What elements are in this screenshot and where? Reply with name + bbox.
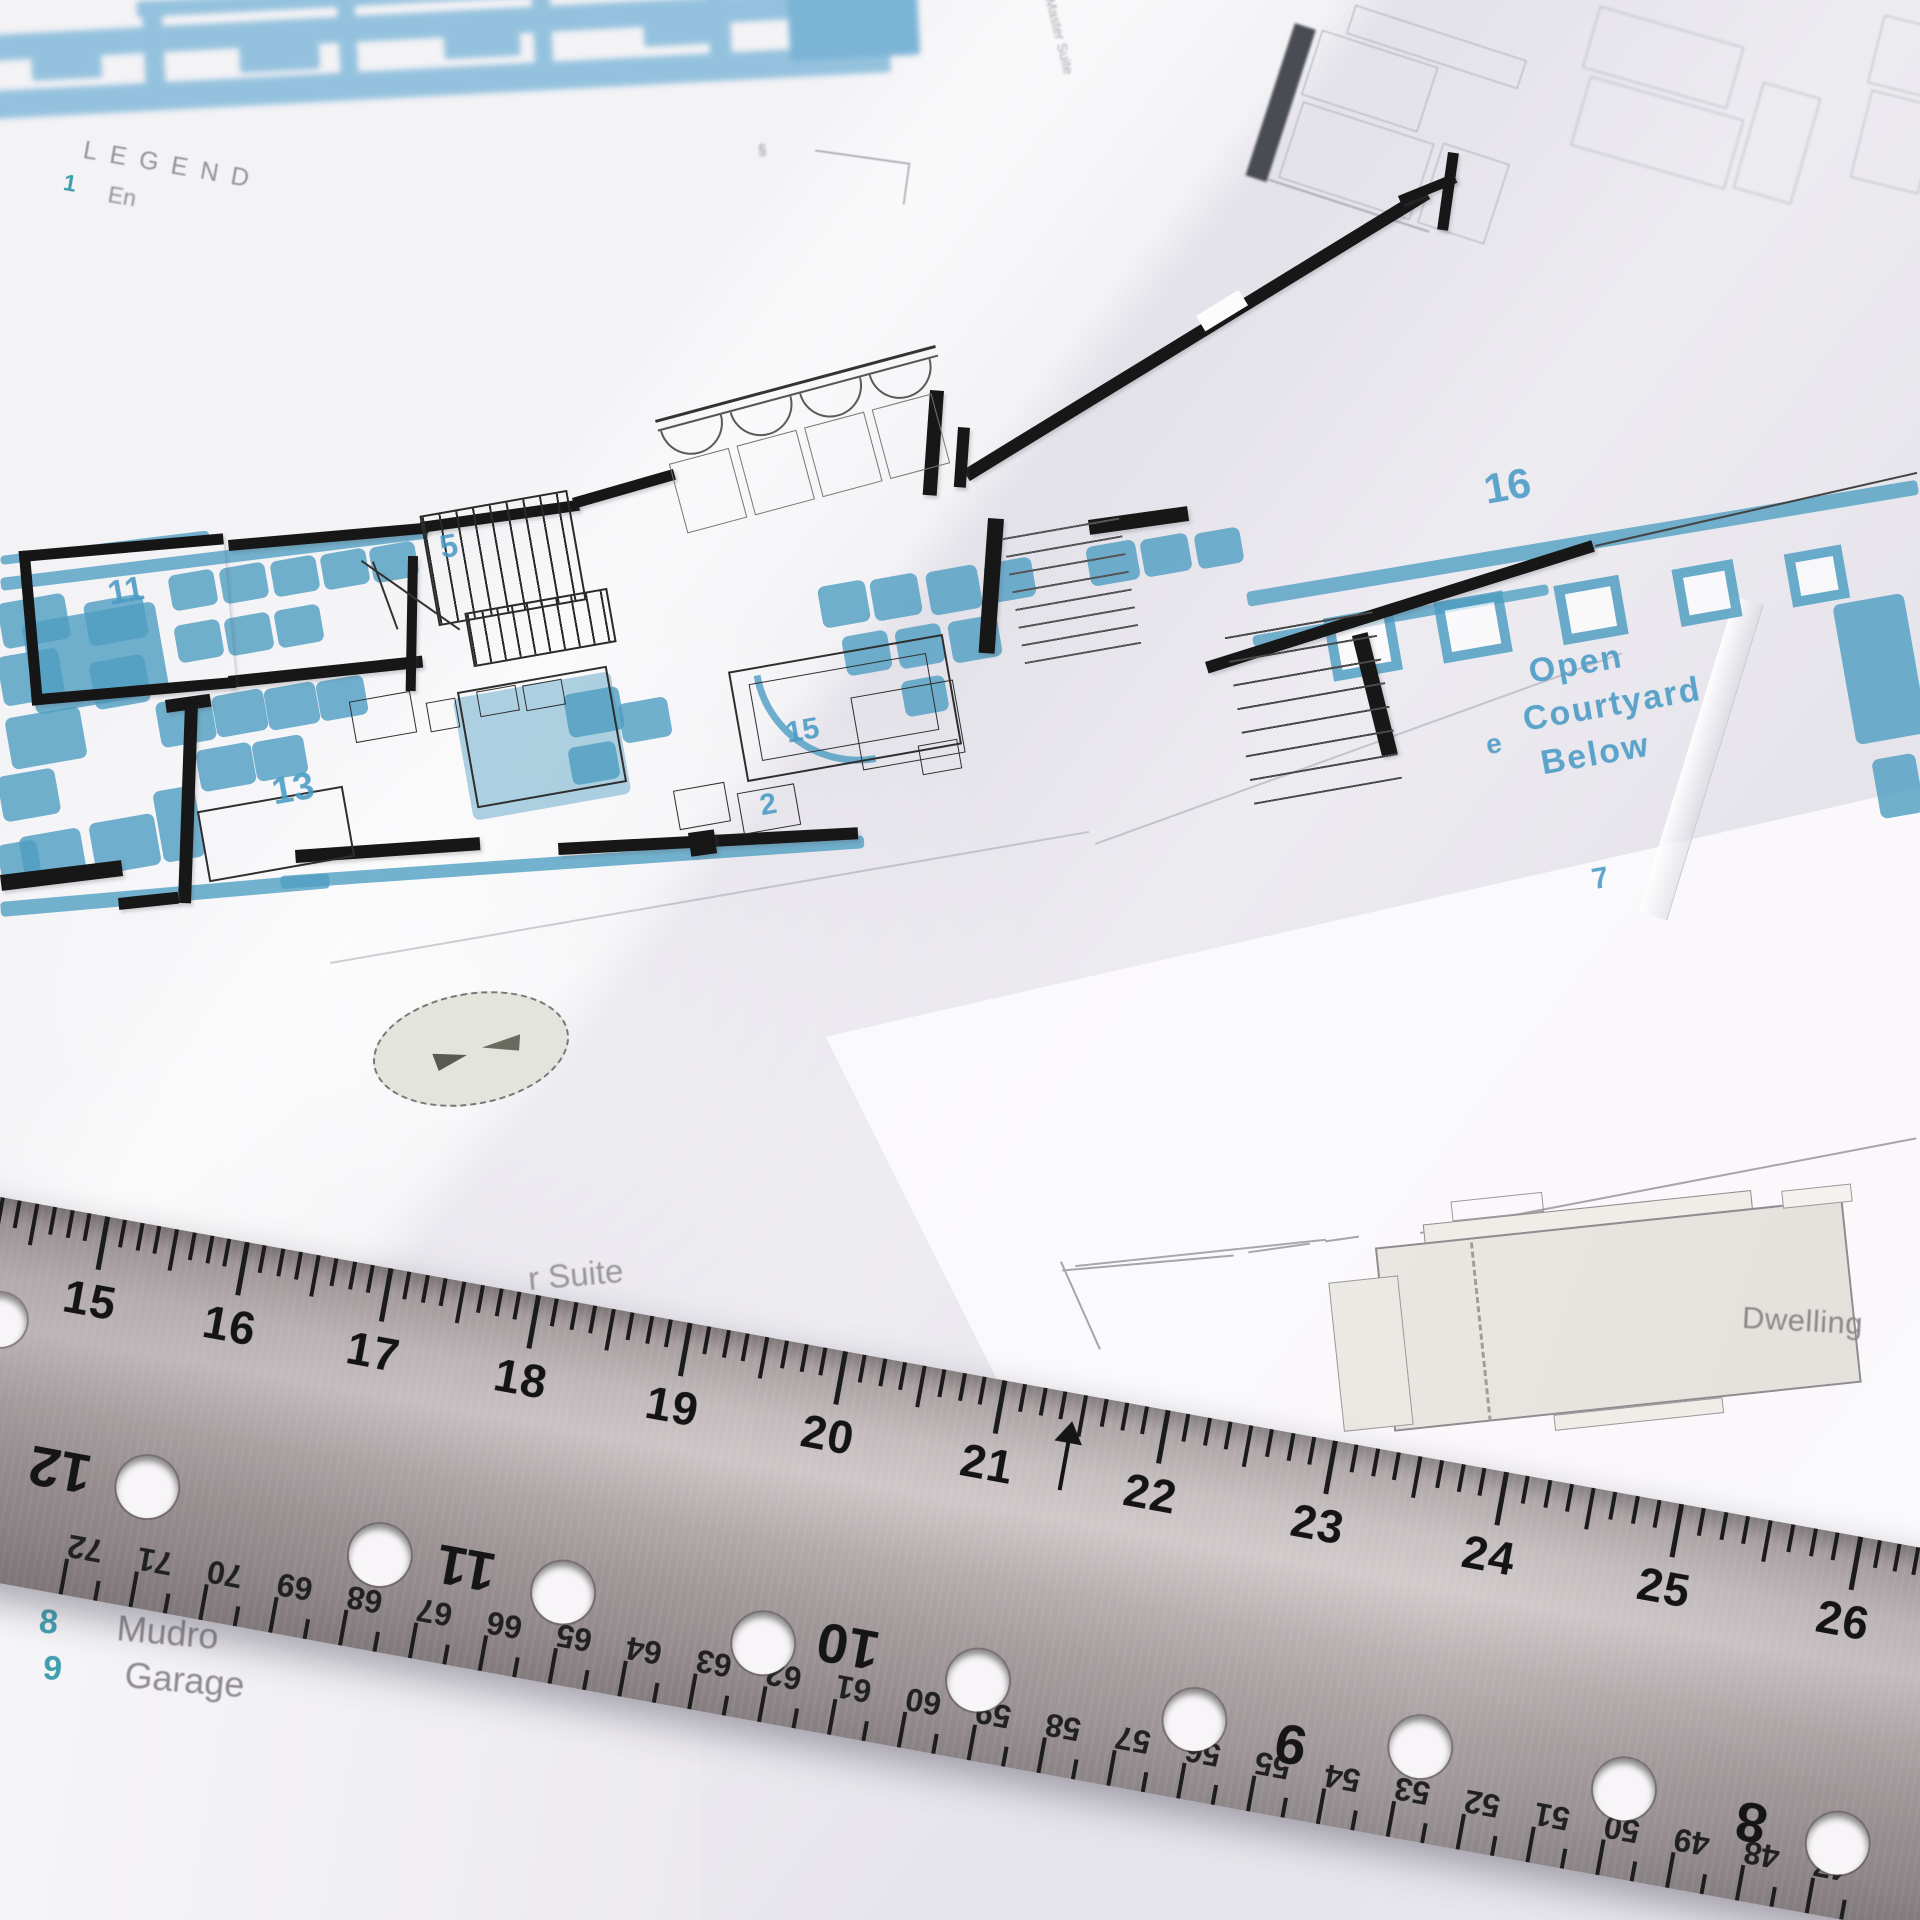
blueprint-furniture-blob	[817, 579, 872, 629]
gray-room	[1867, 15, 1920, 100]
blueprint-furniture-blob	[925, 564, 984, 616]
ink-furniture	[918, 739, 963, 775]
ink-wall	[572, 469, 676, 509]
gray-room	[1850, 90, 1920, 194]
ruler-hole-number: 9	[1269, 1710, 1311, 1780]
blueprint-furniture-blob	[617, 696, 673, 744]
stray-number: 7	[1589, 861, 1611, 897]
scallop-wall	[655, 345, 952, 482]
legend-item-label: En	[106, 181, 138, 212]
closet-rect	[804, 412, 883, 498]
ink-thin-wall	[1595, 472, 1917, 547]
blueprint-furniture-blob	[1871, 753, 1920, 820]
blueprint-window-square	[1671, 559, 1742, 627]
table-leg	[481, 1034, 523, 1057]
footprint-long-line	[1075, 1239, 1326, 1267]
room-number: 15	[783, 711, 822, 750]
ruler-hole-number: 11	[431, 1531, 501, 1606]
shelf-grid-b	[1224, 606, 1402, 804]
lot-line	[1060, 1261, 1101, 1350]
closet-rect	[736, 430, 815, 516]
blueprint-furniture-blob	[319, 547, 371, 590]
gray-room	[1733, 82, 1821, 204]
blueprint-room	[643, 7, 725, 47]
blueprint-furniture-blob	[1193, 526, 1245, 569]
blueprint-furniture-blob	[1139, 532, 1193, 578]
table-leg	[432, 1048, 469, 1072]
blueprint-room	[31, 43, 103, 81]
blueprint-wall	[142, 4, 166, 90]
film-edge-highlight	[1639, 596, 1764, 920]
blueprint-room	[443, 21, 521, 59]
ruler-hole-number: 12	[23, 1433, 96, 1508]
room-number: 13	[269, 765, 318, 815]
blueprint-furniture-blob	[4, 706, 88, 770]
ink-wall	[963, 188, 1430, 481]
shelf-grid-a	[1001, 506, 1142, 664]
pencil-mark	[810, 150, 911, 205]
blueprint-furniture-blob	[869, 572, 924, 622]
ruler-hole-number: 8	[1730, 1788, 1772, 1858]
blueprint-block	[785, 0, 920, 61]
suite-label: r Suite	[527, 1252, 625, 1298]
legend-row-number: 9	[41, 1649, 63, 1690]
blueprint-window-square	[1784, 544, 1850, 607]
blueprint-furniture-blob	[269, 554, 321, 597]
blueprint-wall	[531, 0, 554, 77]
round-table	[364, 977, 578, 1122]
ink-wall	[688, 829, 717, 856]
blueprint-furniture-blob	[195, 741, 257, 792]
legend-row-number: 8	[37, 1602, 59, 1643]
blueprint-furniture-blob	[0, 767, 62, 822]
legend-row-label: Garage	[123, 1654, 246, 1706]
courtyard-line: Open	[1526, 637, 1626, 692]
ink-furniture	[673, 782, 731, 830]
room-number: 11	[105, 569, 147, 614]
blueprint-furniture-blob	[211, 688, 270, 738]
ink-wall	[406, 556, 418, 691]
dwelling-label: Dwelling	[1741, 1300, 1864, 1342]
ink-furniture	[349, 691, 417, 743]
blueprint-window-square	[1553, 575, 1628, 646]
ruler-hole-number: 10	[812, 1609, 885, 1684]
blueprint-room	[238, 35, 320, 73]
blueprint-furniture-blob	[263, 681, 322, 731]
blueprint-furniture-blob	[273, 603, 325, 648]
gray-room	[1417, 143, 1510, 245]
blueprint-furniture-blob	[1832, 593, 1920, 745]
pencil-scribble: §	[758, 142, 766, 159]
closet-rect	[669, 448, 748, 534]
ink-furniture	[426, 698, 461, 733]
photo-blueprints-and-ruler: LEGEND 1 En Master Suite §	[0, 0, 1920, 1920]
faint-suite-label: Master Suite	[1042, 0, 1077, 76]
ink-room-box	[19, 533, 237, 705]
blueprint-wall	[337, 0, 360, 87]
stray-letter: e	[1483, 727, 1504, 761]
room-number: 16	[1480, 458, 1534, 513]
blueprint-window-square	[1433, 590, 1513, 663]
